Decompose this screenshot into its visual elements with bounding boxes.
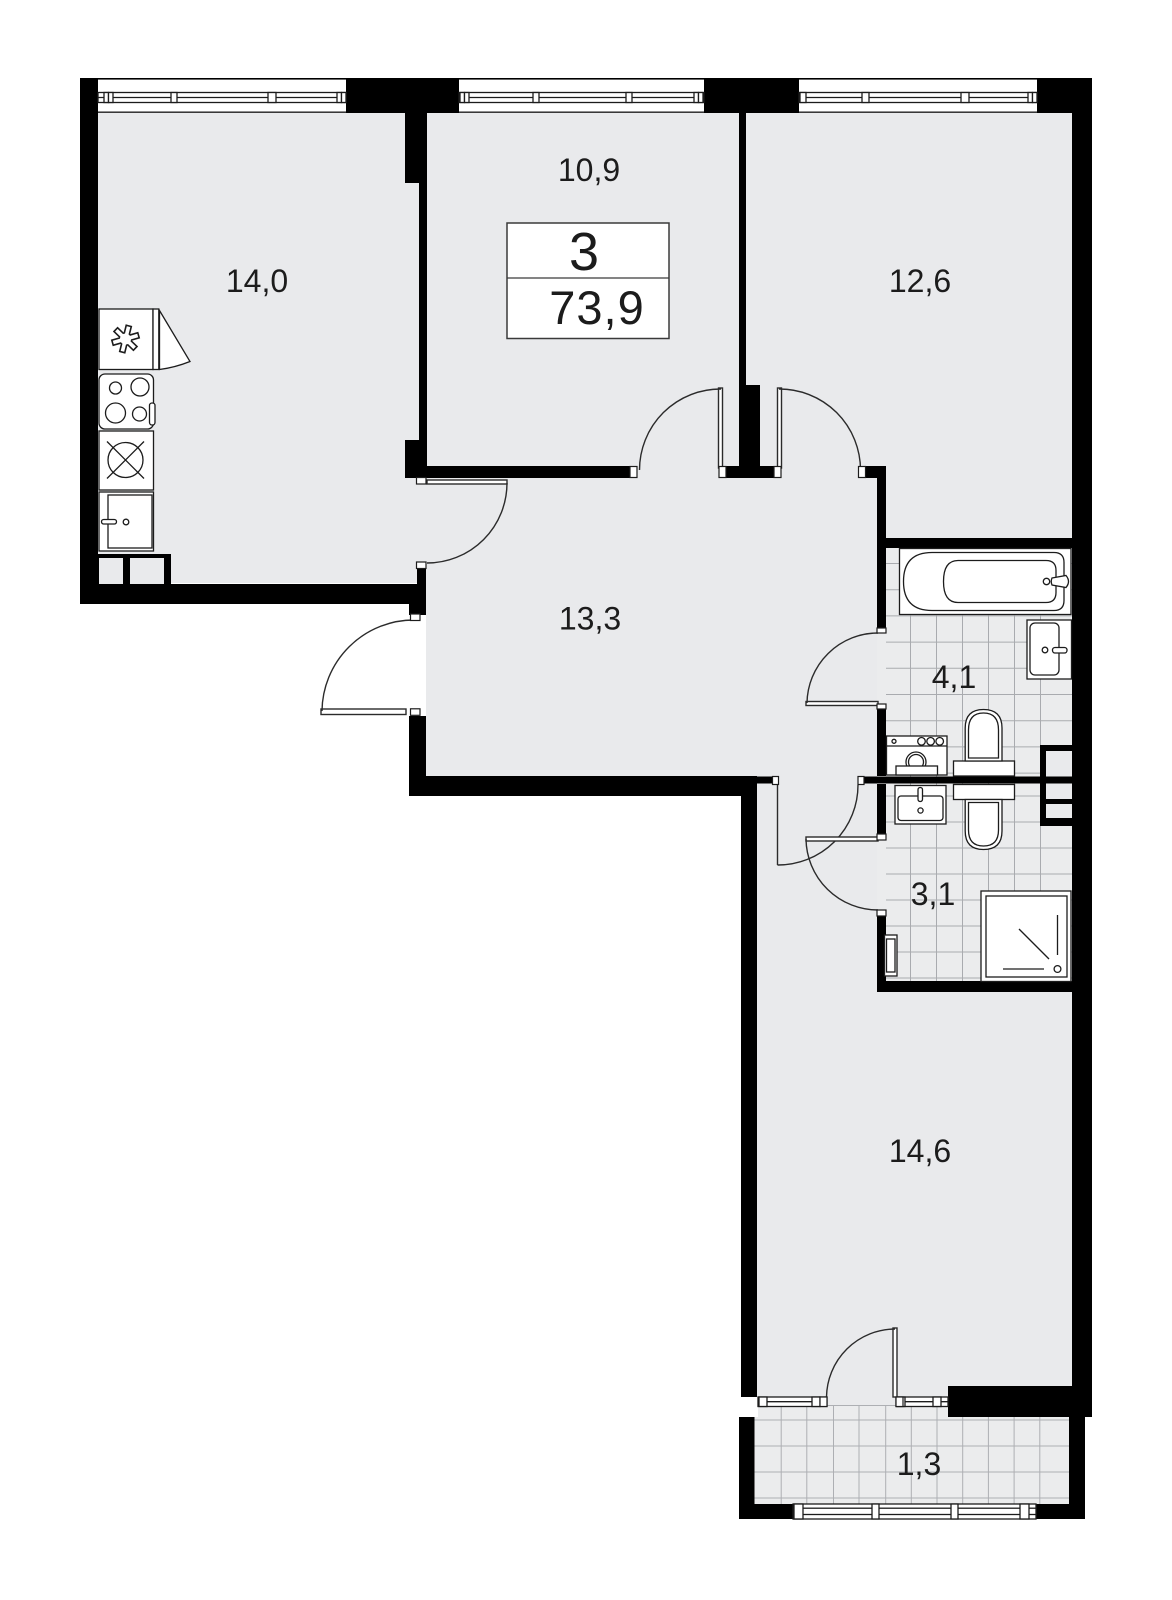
svg-text:3: 3 <box>569 222 599 282</box>
svg-text:3,1: 3,1 <box>911 876 955 912</box>
svg-text:14,0: 14,0 <box>226 263 288 299</box>
svg-text:14,6: 14,6 <box>889 1133 951 1169</box>
svg-text:4,1: 4,1 <box>932 659 976 695</box>
svg-text:1,3: 1,3 <box>897 1446 941 1482</box>
svg-text:12,6: 12,6 <box>889 263 951 299</box>
svg-text:13,3: 13,3 <box>559 601 621 637</box>
svg-text:10,9: 10,9 <box>558 152 620 188</box>
svg-text:73,9: 73,9 <box>549 281 644 334</box>
